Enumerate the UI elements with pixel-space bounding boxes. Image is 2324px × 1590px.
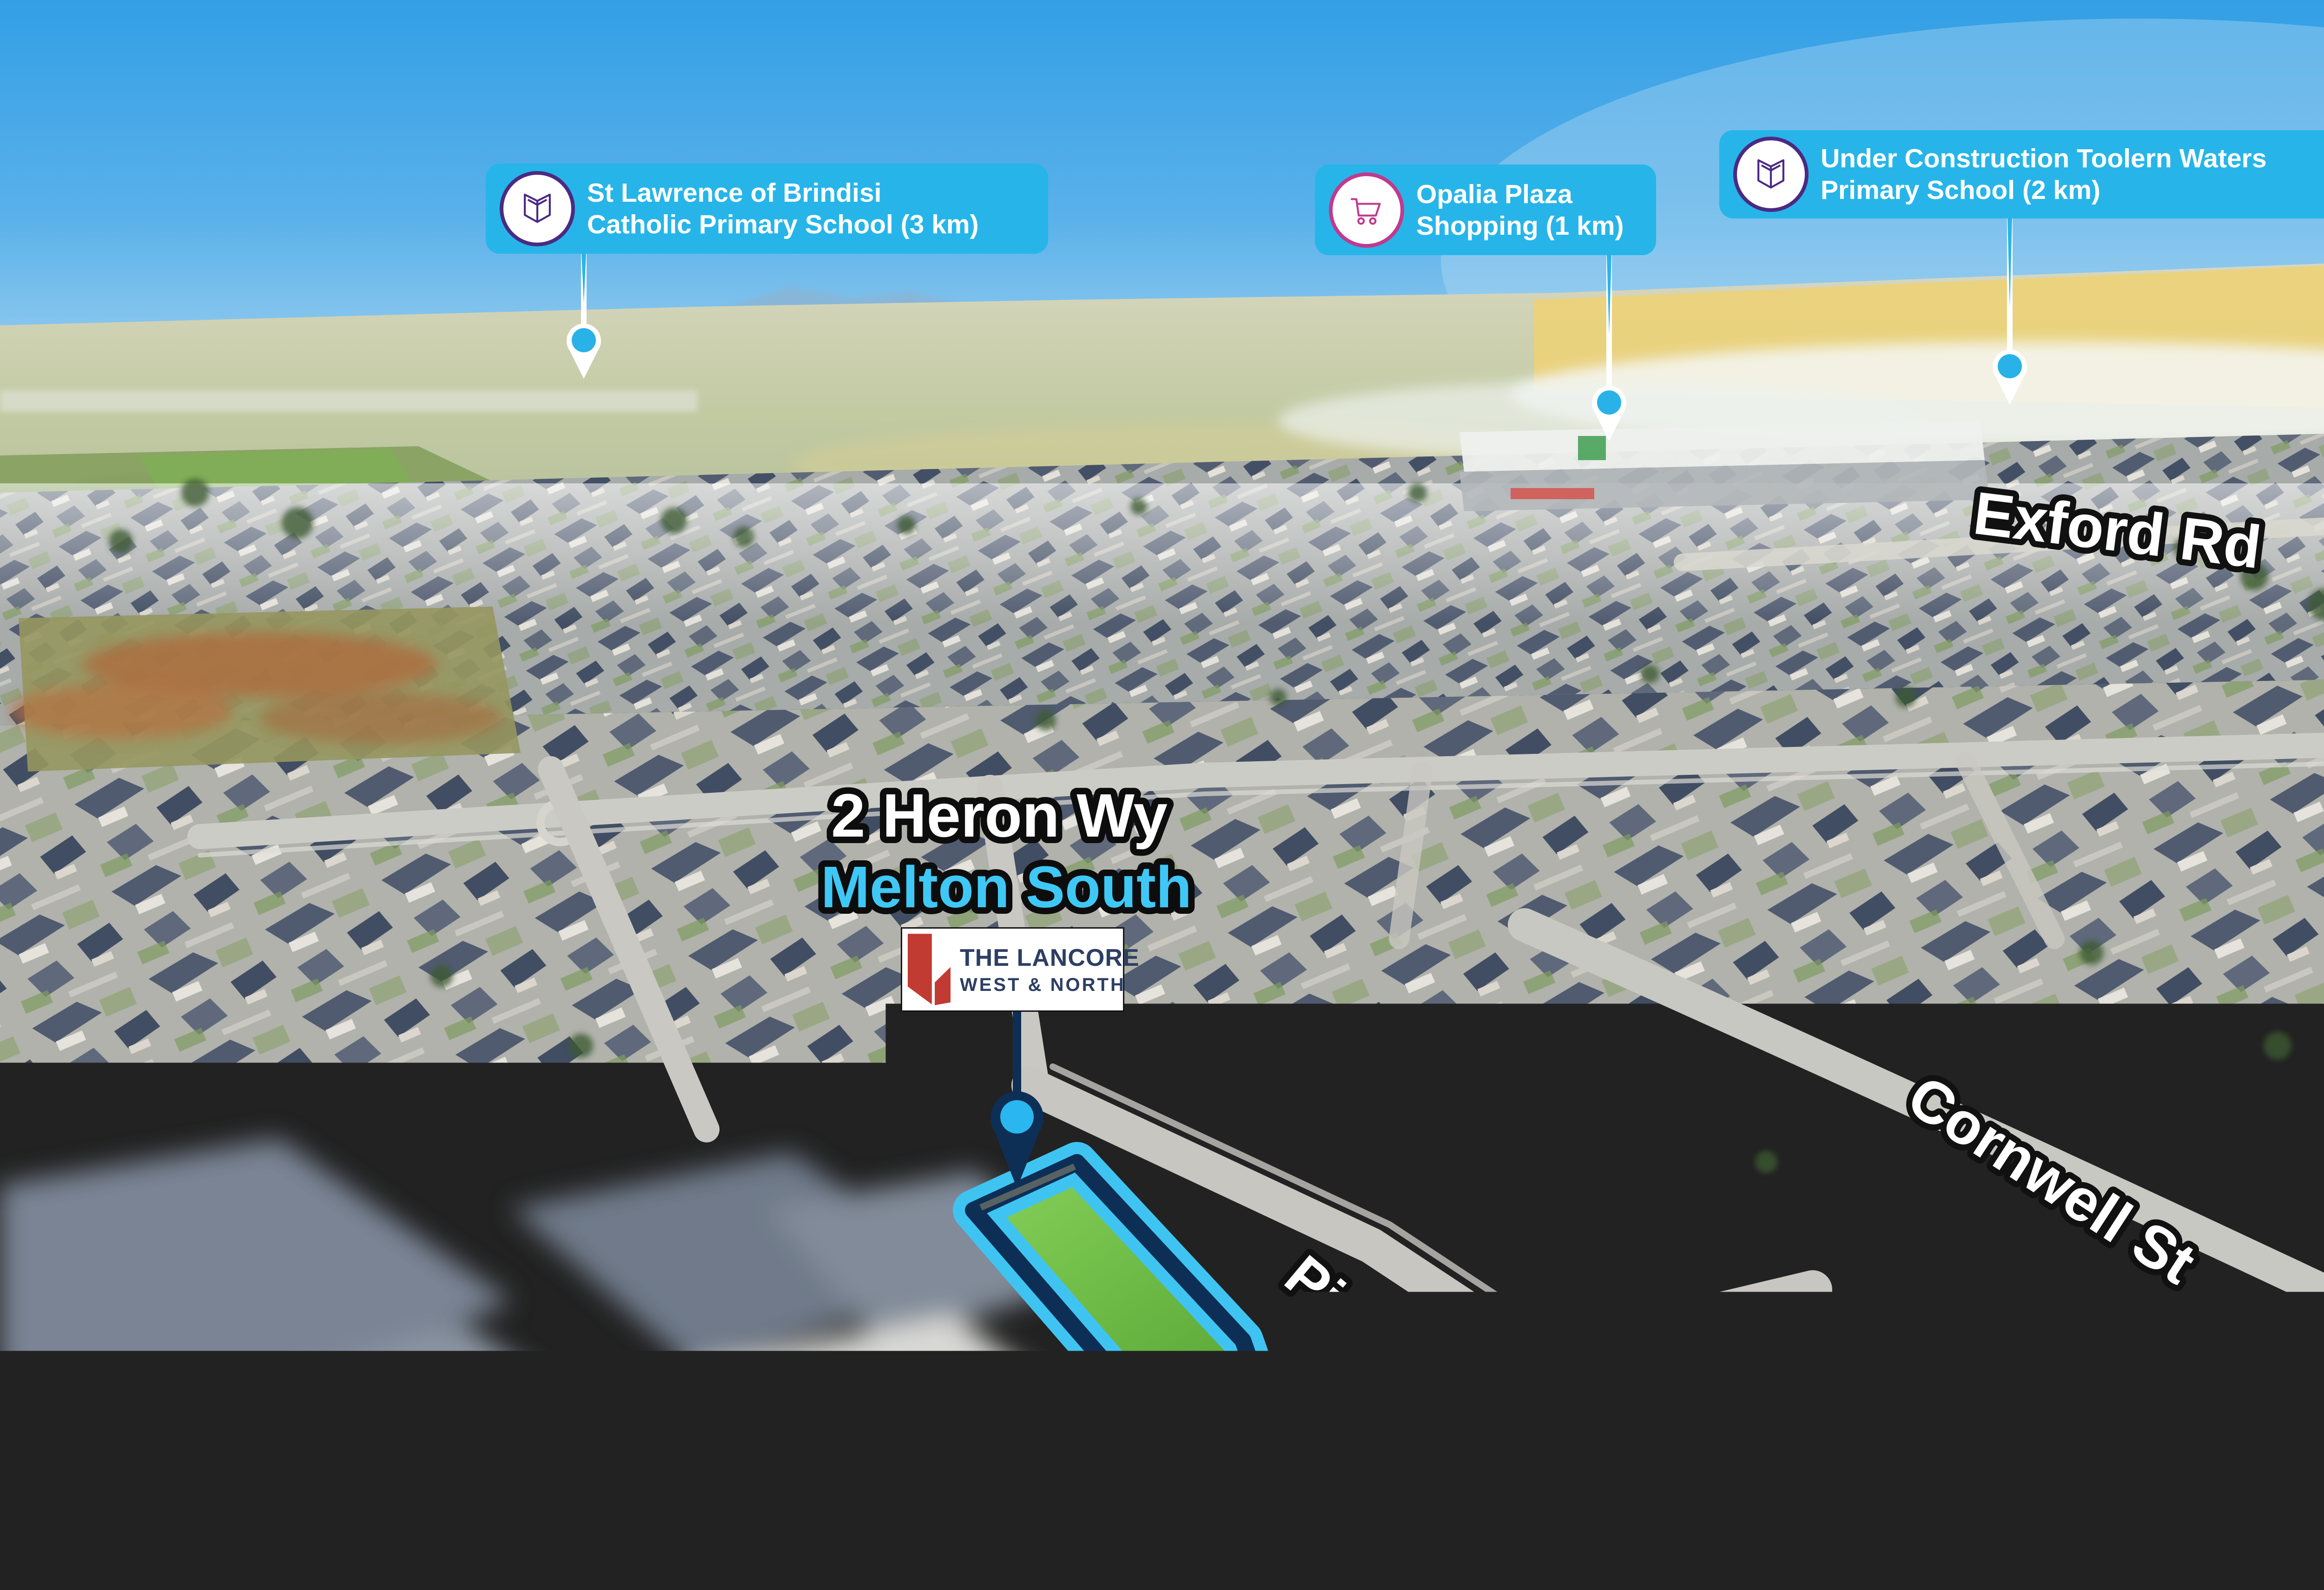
open-book-icon: [500, 171, 575, 246]
shopping-cart-icon: [1329, 172, 1404, 248]
aerial-map: Exford Rd Cornwell St Pintail Dr Heron W…: [0, 0, 2324, 1590]
poi-badge-toolern-waters-school: Under Construction Toolern Waters Primar…: [1719, 130, 2324, 218]
poi-badge-line: Shopping (1 km): [1416, 210, 1624, 242]
logo-sub: WEST & NORTH: [960, 975, 1126, 996]
poi-badge-opalia-plaza: Opalia Plaza Shopping (1 km): [1315, 165, 1656, 255]
address-line2: Melton South: [821, 854, 1192, 920]
poi-badge-st-lawrence-school: St Lawrence of Brindisi Catholic Primary…: [486, 164, 1048, 254]
poi-badge-line: Under Construction Toolern Waters: [1821, 143, 2267, 174]
poi-badge-label: St Lawrence of Brindisi Catholic Primary…: [587, 177, 979, 240]
lancore-logo-card: THE LANCORE WEST & NORTH: [901, 927, 1124, 1012]
poi-badge-label: Under Construction Toolern Waters Primar…: [1821, 143, 2267, 206]
poi-badge-label: Opalia Plaza Shopping (1 km): [1416, 178, 1624, 242]
poi-badge-line: Opalia Plaza: [1416, 178, 1624, 210]
aerial-photo-backdrop: Exford Rd Cornwell St Pintail Dr Heron W…: [0, 0, 2324, 1590]
poi-badge-line: St Lawrence of Brindisi: [587, 177, 979, 209]
logo-name: THE LANCORE: [960, 944, 1140, 972]
open-book-icon: [1733, 137, 1809, 212]
address-line1: 2 Heron Wy: [831, 781, 1168, 850]
poi-badge-line: Catholic Primary School (3 km): [587, 209, 979, 240]
lancore-logo-mark: [908, 934, 951, 1005]
poi-badge-line: Primary School (2 km): [1821, 174, 2267, 206]
